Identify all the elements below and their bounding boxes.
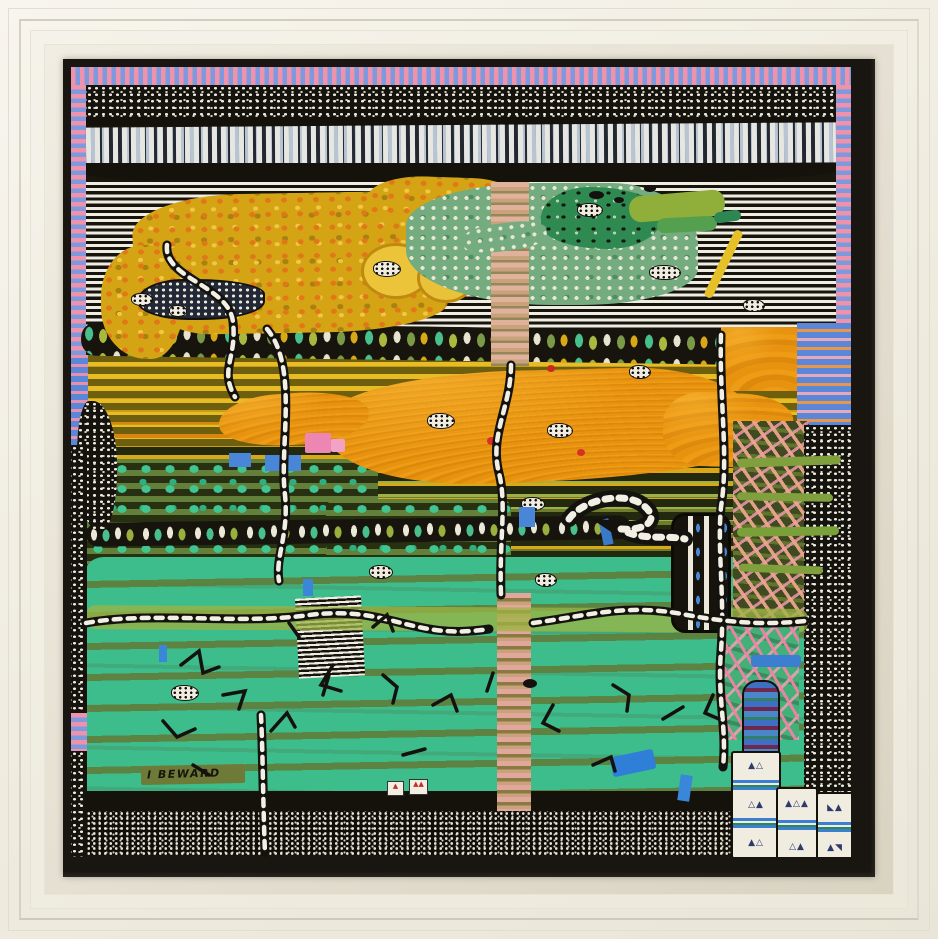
tower-triangle-panel: ◣▲ — [818, 794, 851, 822]
checker-band — [86, 811, 836, 855]
artist-signature: I BEWARD — [147, 765, 257, 786]
pink-square — [305, 433, 331, 453]
dot-blob — [373, 261, 401, 277]
dot-blob — [427, 413, 455, 429]
pink-dash-zone — [733, 421, 809, 625]
green-bar-2 — [737, 492, 833, 502]
dot-blob — [743, 299, 765, 312]
dot-blob — [629, 365, 651, 379]
tower-triangle-panel: ▲△ — [733, 753, 779, 780]
tan-ladder-column — [491, 182, 529, 366]
blue-bar — [751, 655, 801, 667]
tower-stripe-band — [733, 818, 779, 830]
blue-square — [229, 453, 251, 467]
dot-blob — [547, 423, 573, 438]
tower-triangle-panel: ▲◥ — [818, 834, 851, 857]
triangle-tower: ▲△▲△▲ — [776, 787, 818, 857]
tower-triangle-panel: △▲ — [733, 792, 779, 819]
blue-square — [519, 507, 535, 527]
blue-tick — [303, 579, 313, 596]
right-dot-border — [804, 425, 851, 813]
tower-triangle-panel: ▲△▲ — [778, 789, 816, 820]
blue-stripe-block — [797, 323, 851, 429]
dot-blob — [649, 265, 681, 280]
tower-triangle-panel: ▲△ — [733, 830, 779, 857]
tower-stripe-band — [818, 822, 851, 834]
dot-blob — [169, 305, 187, 317]
dot-blob — [171, 685, 199, 701]
black-blob — [644, 185, 656, 192]
black-blob — [614, 197, 624, 203]
brick-band — [86, 122, 836, 167]
tower-triangle-panel: △▲ — [778, 832, 816, 857]
bottom-black-band — [86, 791, 836, 813]
red-dot — [487, 437, 496, 445]
frame-black-lip: I BEWARD▲△△▲▲△▲△▲△▲◣▲▲◥▲▲▲ — [63, 59, 875, 877]
green-bar-3 — [737, 526, 839, 537]
border-stripes-top — [71, 67, 851, 85]
dotted-lake — [137, 279, 265, 320]
red-dot — [577, 449, 585, 456]
pink-square — [331, 439, 345, 452]
dot-band — [86, 85, 836, 118]
blue-tick — [159, 645, 167, 662]
dot-blob — [369, 565, 393, 579]
photo-of-framed-painting: I BEWARD▲△△▲▲△▲△▲△▲◣▲▲◥▲▲▲ — [0, 0, 938, 939]
blue-square — [265, 455, 301, 471]
red-dot — [547, 365, 555, 372]
islet-2 — [657, 215, 718, 233]
triangle-tower: ▲△△▲▲△ — [731, 751, 781, 857]
dot-blob — [535, 573, 557, 587]
left-pink-bit — [71, 713, 87, 751]
black-panel — [671, 513, 731, 633]
tower-stripe-band — [733, 780, 779, 792]
orange-block-right — [721, 327, 799, 391]
triangle-tower: ◣▲▲◥ — [816, 792, 851, 857]
painting-canvas: I BEWARD▲△△▲▲△▲△▲△▲◣▲▲◥▲▲▲ — [71, 67, 851, 857]
black-blob — [589, 191, 604, 199]
left-dot-column — [71, 445, 87, 857]
dot-blob — [131, 293, 153, 306]
black-blob — [523, 679, 537, 688]
dot-blob — [577, 203, 603, 217]
triangle-tag: ▲▲ — [409, 779, 428, 795]
triangle-tag: ▲ — [387, 781, 404, 796]
tower-stripe-band — [778, 820, 816, 832]
